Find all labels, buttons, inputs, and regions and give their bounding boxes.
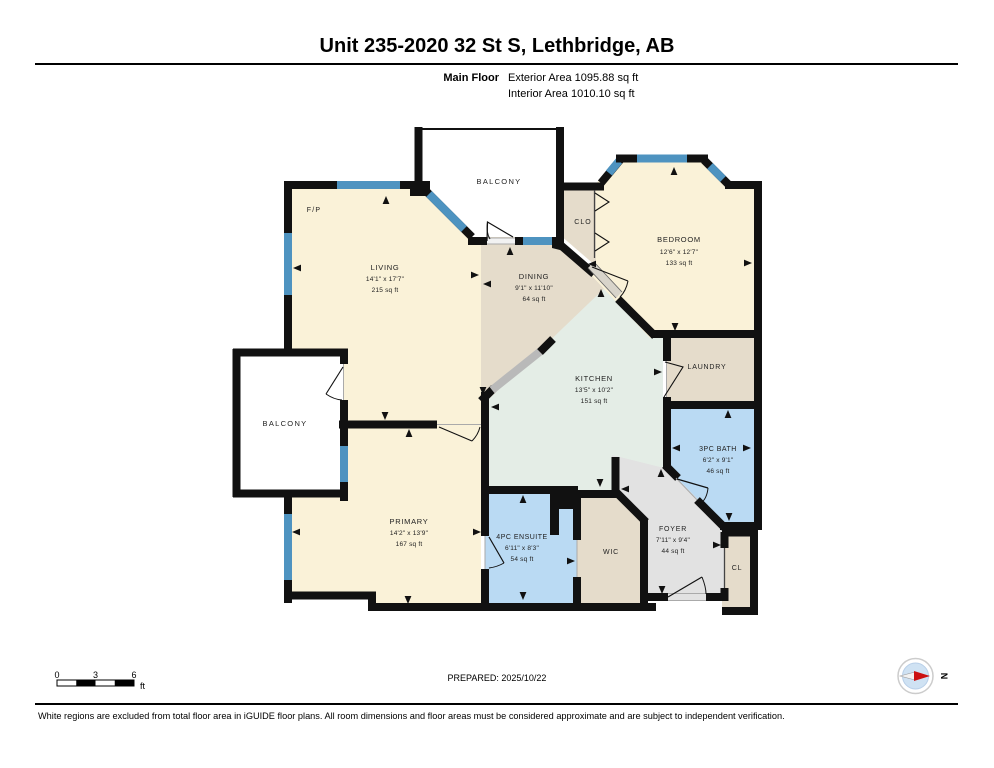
svg-text:CL: CL	[732, 565, 743, 572]
svg-text:LAUNDRY: LAUNDRY	[688, 364, 727, 371]
svg-text:6: 6	[131, 670, 136, 680]
svg-text:DINING: DINING	[519, 272, 549, 281]
svg-text:215 sq ft: 215 sq ft	[372, 287, 399, 294]
svg-text:CLO: CLO	[574, 219, 591, 226]
svg-text:4PC ENSUITE: 4PC ENSUITE	[496, 534, 547, 541]
svg-text:46 sq ft: 46 sq ft	[707, 468, 730, 475]
svg-text:9'1" x 11'10": 9'1" x 11'10"	[515, 285, 553, 292]
svg-text:64 sq ft: 64 sq ft	[523, 296, 546, 303]
svg-text:Main Floor: Main Floor	[443, 72, 499, 84]
svg-text:54 sq ft: 54 sq ft	[511, 556, 534, 563]
svg-text:KITCHEN: KITCHEN	[575, 374, 613, 383]
svg-text:ft: ft	[140, 681, 146, 691]
svg-text:7'11" x 9'4": 7'11" x 9'4"	[656, 537, 690, 544]
svg-text:WIC: WIC	[603, 549, 619, 556]
svg-text:PRIMARY: PRIMARY	[390, 517, 429, 526]
svg-text:White regions are excluded fro: White regions are excluded from total fl…	[38, 711, 785, 721]
svg-text:BEDROOM: BEDROOM	[657, 235, 701, 244]
svg-text:3PC BATH: 3PC BATH	[699, 446, 737, 453]
svg-text:Unit 235-2020 32 St S, Lethbri: Unit 235-2020 32 St S, Lethbridge, AB	[320, 35, 675, 57]
svg-text:3: 3	[93, 670, 98, 680]
svg-text:FOYER: FOYER	[659, 526, 687, 533]
svg-text:167 sq ft: 167 sq ft	[396, 541, 423, 548]
svg-text:BALCONY: BALCONY	[263, 419, 308, 428]
svg-text:14'2" x 13'9": 14'2" x 13'9"	[390, 530, 429, 537]
svg-text:0: 0	[54, 670, 59, 680]
svg-text:44 sq ft: 44 sq ft	[662, 548, 685, 555]
svg-text:13'5" x 10'2": 13'5" x 10'2"	[575, 387, 614, 394]
svg-text:F/P: F/P	[307, 207, 322, 214]
svg-text:151 sq ft: 151 sq ft	[581, 398, 608, 405]
svg-text:Interior Area 1010.10 sq ft: Interior Area 1010.10 sq ft	[508, 88, 635, 100]
svg-text:12'6" x 12'7": 12'6" x 12'7"	[660, 249, 699, 256]
svg-text:N: N	[939, 673, 949, 680]
svg-text:133 sq ft: 133 sq ft	[666, 260, 693, 267]
svg-text:Exterior Area 1095.88 sq ft: Exterior Area 1095.88 sq ft	[508, 72, 638, 84]
svg-text:LIVING: LIVING	[371, 263, 400, 272]
svg-text:PREPARED: 2025/10/22: PREPARED: 2025/10/22	[448, 673, 547, 683]
svg-text:6'2" x 9'1": 6'2" x 9'1"	[703, 457, 734, 464]
svg-text:BALCONY: BALCONY	[477, 177, 522, 186]
svg-text:14'1" x 17'7": 14'1" x 17'7"	[366, 276, 405, 283]
svg-text:6'11" x 8'3": 6'11" x 8'3"	[505, 545, 539, 552]
